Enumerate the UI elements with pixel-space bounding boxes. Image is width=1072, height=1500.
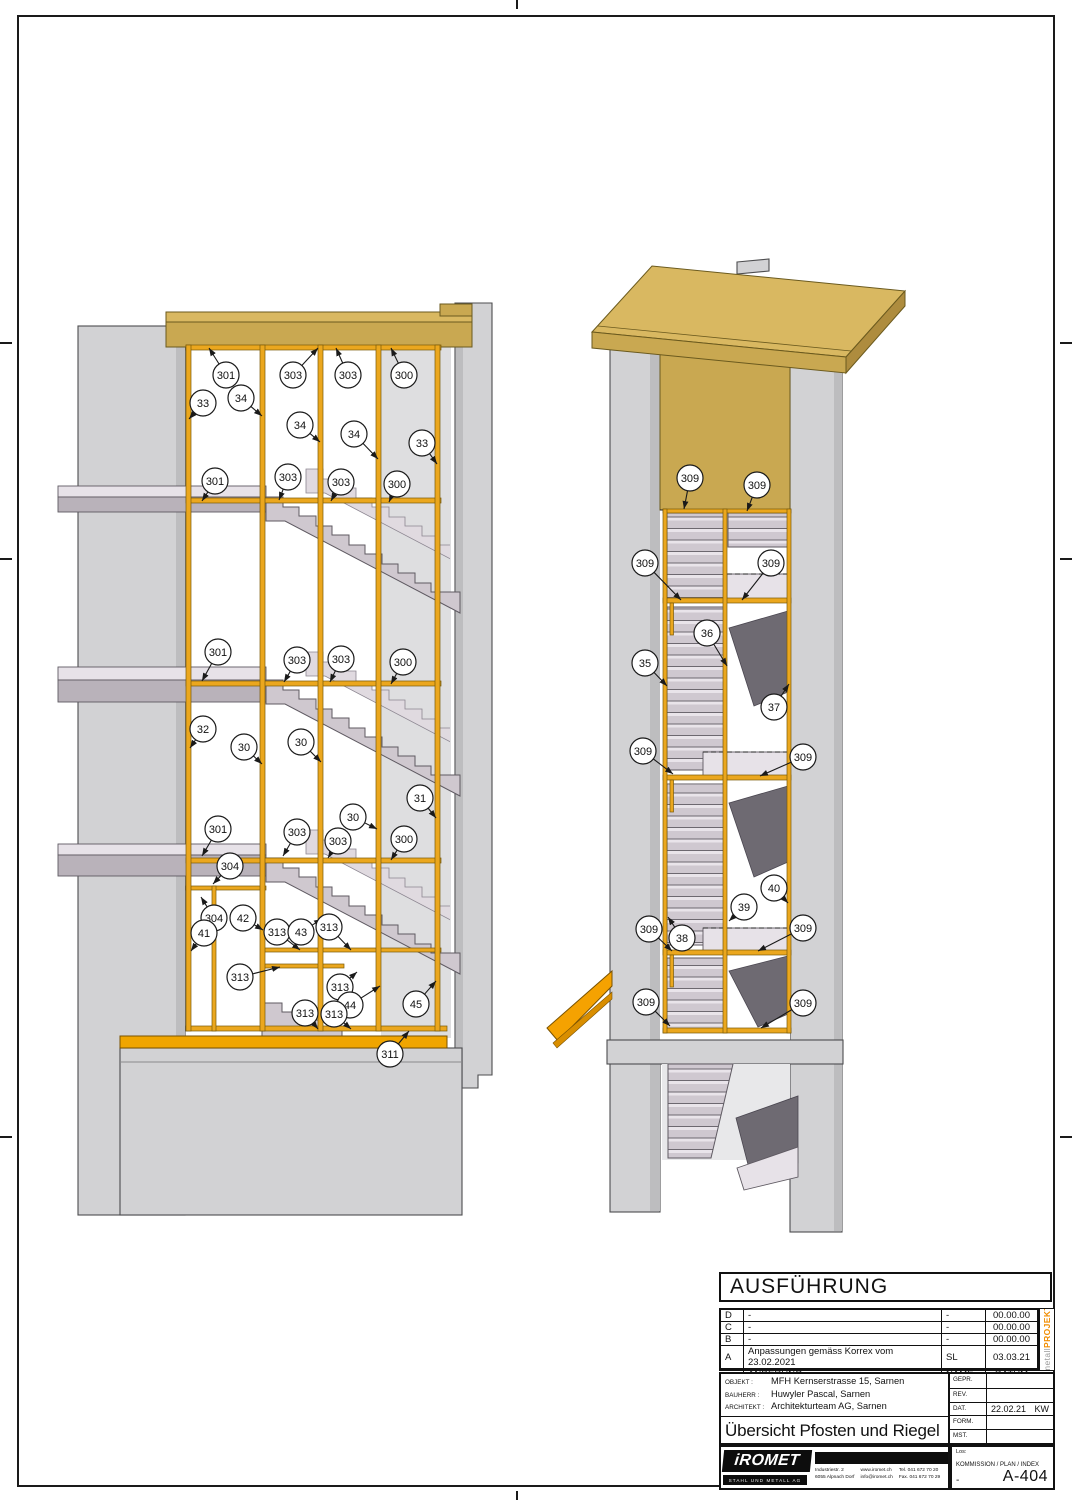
svg-text:300: 300	[394, 657, 412, 669]
svg-text:303: 303	[332, 477, 350, 489]
svg-text:33: 33	[416, 438, 428, 450]
titleblock: AUSFÜHRUNG D - - 00.00.00 C - - 00.00.00…	[719, 1268, 1055, 1490]
rev-index: B	[721, 1334, 743, 1345]
company-tel: Tel. 041 672 70 20	[899, 1467, 940, 1474]
company-fax: Fax. 041 672 70 29	[899, 1474, 940, 1481]
svg-text:304: 304	[221, 861, 239, 873]
callout-42: 42	[230, 905, 263, 931]
rev-index: C	[721, 1322, 743, 1333]
meta-row-mst: MST.	[950, 1429, 1053, 1443]
rev-date: 00.00.00	[985, 1310, 1037, 1321]
svg-text:43: 43	[295, 927, 307, 939]
rev-date: 03.03.21	[985, 1346, 1037, 1368]
svg-text:303: 303	[329, 836, 347, 848]
los-label: Los:	[956, 1449, 966, 1455]
rev-desc: -	[743, 1310, 941, 1321]
mst-label: MST.	[950, 1430, 986, 1443]
callout-30: 30	[231, 734, 262, 764]
plan-sheet: 3013033033003334343433301303303300301303…	[0, 0, 1072, 1500]
bauherr-value: Huwyler Pascal, Sarnen	[771, 1389, 870, 1400]
architekt-label: ARCHITEKT :	[725, 1403, 771, 1414]
svg-text:303: 303	[339, 370, 357, 382]
logo-bar	[815, 1452, 948, 1464]
svg-text:35: 35	[639, 658, 651, 670]
gepr-value	[986, 1374, 1053, 1388]
callout-303: 303	[280, 348, 318, 388]
brand-side-strip: metallPROJEKT	[1039, 1308, 1055, 1371]
company-web: www.iromet.ch	[860, 1467, 892, 1474]
callout-30: 30	[288, 729, 321, 762]
rev-index: A	[721, 1346, 743, 1368]
svg-text:42: 42	[237, 913, 249, 925]
company-address: Industriestr. 2 6055 Alpnach Dorf www.ir…	[815, 1467, 950, 1481]
brand-projekt: PROJEKT	[1042, 1308, 1052, 1348]
svg-text:36: 36	[701, 628, 713, 640]
svg-text:309: 309	[640, 924, 658, 936]
svg-text:313: 313	[268, 927, 286, 939]
svg-text:40: 40	[768, 883, 780, 895]
company-logo-block: iROMET STAHL UND METALL AG Industriestr.…	[719, 1445, 950, 1490]
status-box: AUSFÜHRUNG	[719, 1272, 1052, 1302]
svg-text:309: 309	[762, 558, 780, 570]
revision-row: C - - 00.00.00	[721, 1321, 1037, 1333]
svg-text:303: 303	[288, 827, 306, 839]
svg-text:41: 41	[198, 928, 210, 940]
svg-text:30: 30	[347, 812, 359, 824]
svg-text:300: 300	[395, 834, 413, 846]
dat-label: DAT.	[950, 1403, 986, 1416]
kommission-value: -	[956, 1475, 959, 1486]
bauherr-label: BAUHERR :	[725, 1391, 771, 1402]
svg-text:34: 34	[294, 420, 306, 432]
svg-text:309: 309	[748, 480, 766, 492]
rev-name: -	[941, 1322, 985, 1333]
form-value	[986, 1416, 1053, 1429]
rev-desc: -	[743, 1334, 941, 1345]
sheet-title: Übersicht Pfosten und Riegel	[721, 1417, 948, 1441]
meta-row-gepr: GEPR.	[950, 1374, 1053, 1388]
callout-303: 303	[275, 464, 301, 500]
svg-text:33: 33	[197, 398, 209, 410]
svg-text:301: 301	[206, 476, 224, 488]
rev-name: -	[941, 1310, 985, 1321]
svg-text:309: 309	[794, 923, 812, 935]
meta-table: GEPR. REV. DAT. 22.02.21 KW FORM. MST.	[950, 1372, 1055, 1445]
svg-text:313: 313	[231, 972, 249, 984]
svg-text:32: 32	[197, 724, 209, 736]
revision-table: D - - 00.00.00 C - - 00.00.00 B - - 00.0…	[719, 1308, 1039, 1371]
project-info: OBJEKT : MFH Kernserstrasse 15, Sarnen B…	[719, 1372, 950, 1445]
brand-metall: metall	[1042, 1348, 1052, 1371]
dat-value: 22.02.21	[991, 1404, 1026, 1414]
mst-value	[986, 1430, 1053, 1443]
architekt-value: Architekturteam AG, Sarnen	[771, 1401, 887, 1412]
plan-number: A-404	[1003, 1468, 1048, 1486]
svg-text:300: 300	[395, 370, 413, 382]
callout-303: 303	[335, 348, 361, 388]
objekt-label: OBJEKT :	[725, 1378, 771, 1389]
revision-row: B - - 00.00.00	[721, 1333, 1037, 1345]
svg-text:309: 309	[637, 997, 655, 1009]
rev-label: REV.	[950, 1389, 986, 1402]
svg-text:309: 309	[794, 998, 812, 1010]
svg-text:37: 37	[768, 702, 780, 714]
callout-32: 32	[190, 716, 216, 748]
svg-text:309: 309	[681, 473, 699, 485]
rev-index: D	[721, 1310, 743, 1321]
callout-34: 34	[341, 421, 378, 459]
rev-date: 00.00.00	[985, 1334, 1037, 1345]
rev-desc: Anpassungen gemäss Korrex vom 23.02.2021	[743, 1346, 941, 1368]
rev-date: 00.00.00	[985, 1322, 1037, 1333]
rev-value	[986, 1389, 1053, 1402]
base-slab	[120, 1048, 462, 1215]
revision-row: D - - 00.00.00	[721, 1310, 1037, 1321]
gepr-label: GEPR.	[950, 1374, 986, 1388]
callout-33: 33	[189, 390, 216, 419]
svg-text:30: 30	[238, 742, 250, 754]
right-view: 3093093093093635373093094039383093093093…	[547, 259, 905, 1232]
iromet-logo: iROMET	[722, 1450, 812, 1472]
svg-text:311: 311	[381, 1049, 399, 1061]
svg-text:301: 301	[209, 647, 227, 659]
rev-name: SL	[941, 1346, 985, 1368]
status-label: AUSFÜHRUNG	[730, 1275, 888, 1299]
meta-row-form: FORM.	[950, 1415, 1053, 1429]
callout-30: 30	[340, 804, 377, 830]
svg-text:313: 313	[296, 1008, 314, 1020]
svg-text:38: 38	[676, 933, 688, 945]
svg-text:34: 34	[235, 393, 247, 405]
svg-text:39: 39	[738, 902, 750, 914]
svg-text:309: 309	[636, 558, 654, 570]
svg-text:300: 300	[388, 479, 406, 491]
ground-slab	[607, 1040, 843, 1064]
svg-text:301: 301	[209, 824, 227, 836]
objekt-value: MFH Kernserstrasse 15, Sarnen	[771, 1376, 904, 1387]
rev-desc: -	[743, 1322, 941, 1333]
meta-row-dat: DAT. 22.02.21 KW	[950, 1402, 1053, 1416]
svg-text:31: 31	[414, 793, 426, 805]
callout-301: 301	[209, 348, 239, 388]
address-city: 6055 Alpnach Dorf	[815, 1474, 854, 1481]
svg-text:313: 313	[325, 1009, 343, 1021]
company-email: info@iromet.ch	[860, 1474, 892, 1481]
logo-tagline: STAHL UND METALL AG	[723, 1475, 807, 1485]
svg-text:303: 303	[284, 370, 302, 382]
svg-text:30: 30	[295, 737, 307, 749]
svg-text:309: 309	[634, 746, 652, 758]
address-street: Industriestr. 2	[815, 1467, 854, 1474]
svg-text:303: 303	[288, 655, 306, 667]
svg-text:303: 303	[279, 472, 297, 484]
callout-34: 34	[228, 385, 262, 416]
callout-303: 303	[284, 647, 310, 682]
svg-text:34: 34	[348, 429, 360, 441]
left-view: 3013033033003334343433301303303300301303…	[58, 303, 500, 1215]
rev-name: -	[941, 1334, 985, 1345]
svg-text:313: 313	[320, 922, 338, 934]
svg-text:309: 309	[794, 752, 812, 764]
plan-number-block: Los: KOMMISSION / PLAN / INDEX - A-404	[950, 1445, 1055, 1490]
svg-text:301: 301	[217, 370, 235, 382]
revision-row: A Anpassungen gemäss Korrex vom 23.02.20…	[721, 1345, 1037, 1368]
svg-text:45: 45	[410, 999, 422, 1011]
svg-text:303: 303	[332, 654, 350, 666]
meta-row-rev: REV.	[950, 1388, 1053, 1402]
callout-34: 34	[287, 412, 320, 442]
form-label: FORM.	[950, 1416, 986, 1429]
dat-kw: KW	[1035, 1404, 1050, 1414]
